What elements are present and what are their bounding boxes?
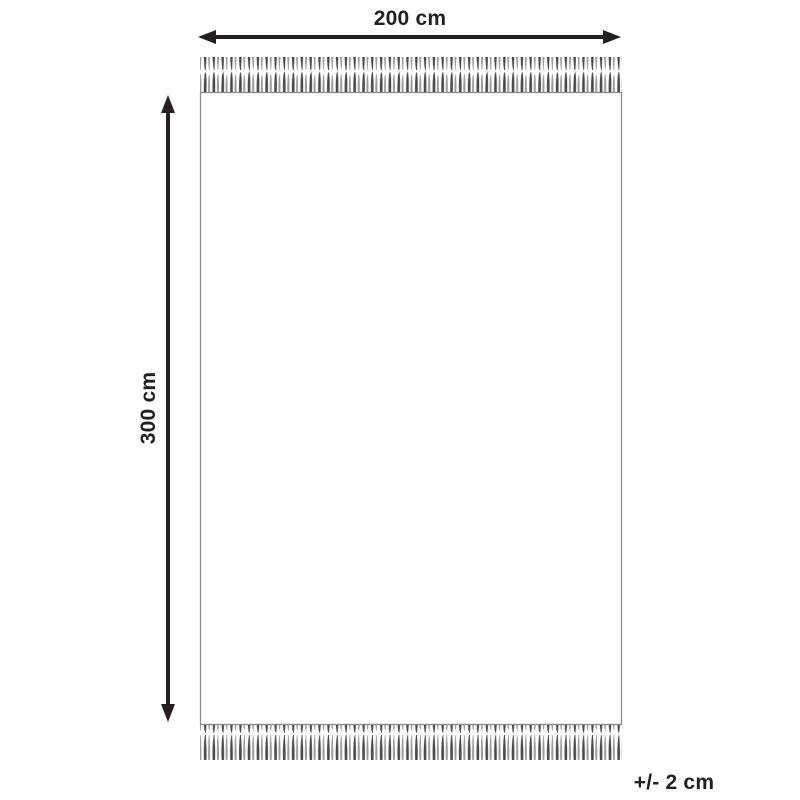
rug-body: [201, 93, 622, 725]
rug-fringe-bottom: [200, 725, 622, 760]
height-arrowhead-top: [161, 95, 175, 113]
tolerance-label: +/- 2 cm: [634, 771, 714, 795]
rug-outline-graphic: [0, 0, 800, 800]
width-dimension-label: 200 cm: [374, 7, 446, 31]
height-arrowhead-bottom: [161, 704, 175, 722]
width-dimension-arrow: [198, 30, 621, 44]
width-arrowhead-left: [198, 30, 216, 44]
height-dimension-label: 300 cm: [137, 372, 161, 444]
rug-dimension-diagram: 200 cm 300 cm +/- 2 cm: [0, 0, 800, 800]
height-dimension-arrow: [161, 95, 175, 722]
rug-fringe-top: [200, 57, 622, 92]
width-arrowhead-right: [603, 30, 621, 44]
